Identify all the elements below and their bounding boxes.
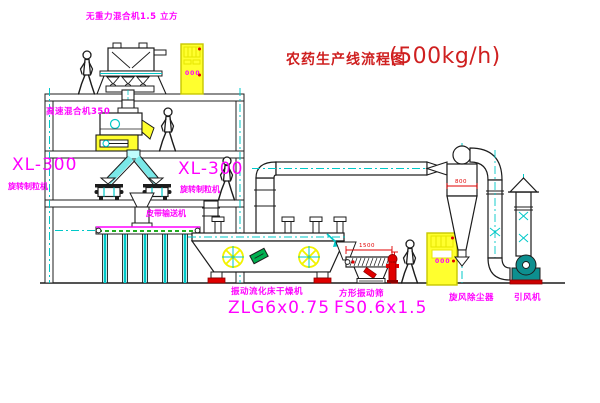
blower-symbol	[298, 246, 320, 268]
dryer-name-label: 振动流化床干燥机	[231, 288, 303, 297]
cyclone-label: 旋风除尘器	[449, 294, 494, 303]
diagram-title: 农药生产线流程图	[286, 53, 406, 67]
panel-ground-text: 000	[435, 259, 451, 265]
belt-conveyor-label: 皮带输送机	[146, 210, 186, 218]
granulator-right-model-label: XL-300	[178, 161, 243, 178]
granulator-right-name-label: 旋转制粒机	[180, 186, 220, 194]
blower-symbol	[222, 246, 244, 268]
high-speed-mixer-label: 高速混合机350	[46, 108, 110, 117]
person-figure	[160, 108, 176, 151]
granulator-left-machine	[95, 178, 124, 200]
panel-top-text: 000	[185, 71, 201, 77]
induced-draft-fan-machine	[510, 255, 542, 284]
indicator-light	[451, 237, 454, 240]
indicator-light	[198, 48, 201, 51]
support-legs	[103, 234, 188, 283]
granulator-left-name-label: 旋转制粒机	[8, 183, 48, 191]
cyclone-diameter-dimension: 800	[455, 180, 467, 186]
belt-conveyor-machine	[96, 227, 200, 234]
person-figure	[79, 51, 95, 94]
fan-label: 引风机	[514, 294, 541, 303]
sieve-model-label: FS0.6x1.5	[334, 300, 427, 317]
sieve-height-dimension: 745	[390, 260, 396, 272]
indicator-light	[452, 260, 455, 263]
granulator-left-model-label: XL-300	[12, 157, 77, 174]
gravity-mixer-label: 无重力混合机1.5 立方	[86, 13, 178, 22]
sieve-length-dimension: 1500	[359, 244, 375, 250]
person-figure	[402, 240, 418, 283]
diagram-title-capacity: (500kg/h)	[389, 46, 501, 68]
control-cabinet-top	[181, 44, 203, 94]
exhaust-duct	[252, 162, 450, 233]
process-flow-diagram: 无重力混合机1.5 立方 农药生产线流程图 (500kg/h) 高速混合机350…	[0, 0, 600, 403]
dryer-model-label: ZLG6x0.75	[228, 300, 330, 317]
